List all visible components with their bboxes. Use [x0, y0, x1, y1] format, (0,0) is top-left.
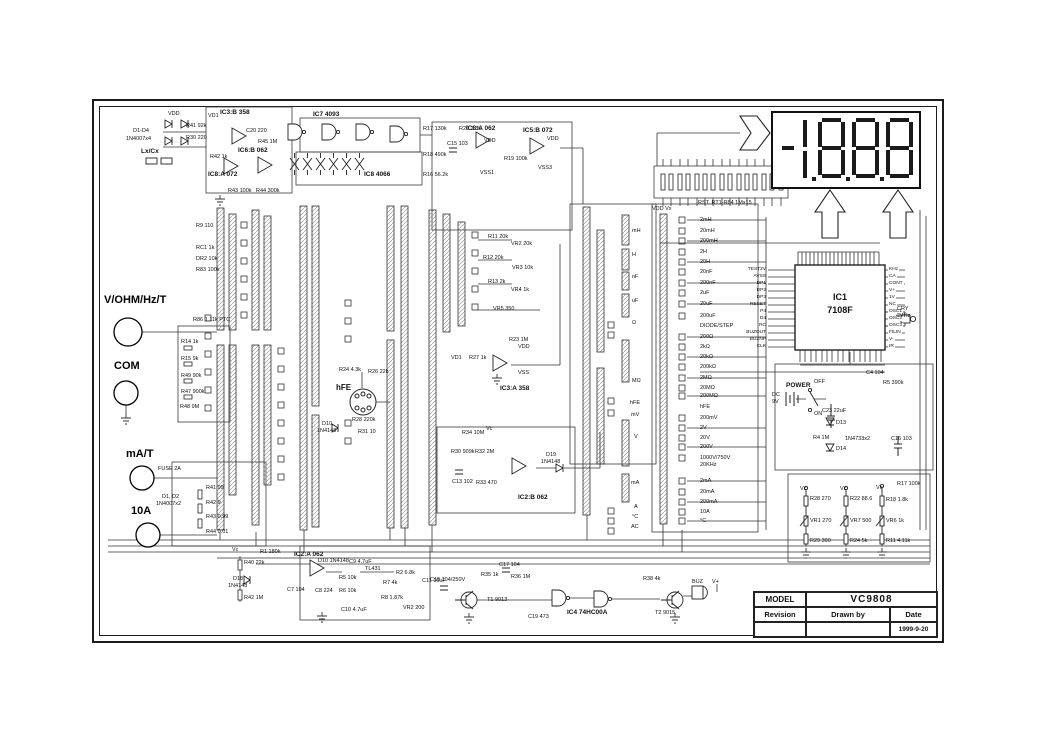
mode-label: MΩ	[632, 378, 641, 384]
label-r17b: R17 100k	[897, 481, 921, 487]
label-r15: R15 9k	[181, 356, 198, 362]
range-label: 200V	[700, 444, 713, 450]
label-r27: R27 1k	[469, 355, 486, 361]
range-label: 200kΩ	[700, 364, 716, 370]
terminal-label-com: COM	[114, 361, 140, 372]
label-r5: R5 10k	[339, 575, 356, 581]
title-block-date-label: Date	[890, 607, 937, 622]
title-block-drawnby-label: Drawn by	[806, 607, 890, 622]
range-label: 20mH	[700, 228, 715, 234]
label-r47: R47 900k	[181, 389, 205, 395]
label-c20: C20 220	[246, 128, 267, 134]
label-vdd: VDD	[518, 344, 530, 350]
ic1-pin-label: RC	[728, 323, 766, 328]
label-r45: R45 1M	[258, 139, 277, 145]
label-vc: Vc	[232, 547, 238, 553]
label-r31: R31 10	[358, 429, 376, 435]
arrow-into-display-icon	[740, 116, 770, 150]
label-r42: R42 1k	[210, 154, 227, 160]
label-buz: BUZ	[692, 579, 703, 585]
arrow-up-right-icon	[883, 190, 913, 238]
label-r86: R86 1.11k PTC	[193, 317, 230, 323]
opamp-ic3b-icon	[232, 128, 246, 144]
label-d1-4-part: 1N4007x4	[126, 136, 151, 142]
label-dc: DC	[772, 392, 780, 398]
label-r16: R16 56.2k	[423, 172, 448, 178]
range-label: 20uF	[700, 301, 713, 307]
range-label: 2kΩ	[700, 344, 710, 350]
label-d18-part: 1N4148	[228, 583, 247, 589]
label-ic7: IC7 4093	[313, 111, 339, 118]
label-ic4: IC4 74HC00A	[567, 609, 607, 616]
ic1-pin-label: BUZNP	[728, 337, 766, 342]
label-d14: D14	[836, 446, 846, 452]
range-label: 200mV	[700, 415, 717, 421]
range-label: 20MΩ	[700, 385, 715, 391]
label-r7: R7 4k	[383, 580, 397, 586]
label-r43-shunt: R43 0.99	[206, 514, 228, 520]
ic1-pin-label: CONT	[888, 281, 904, 286]
label-vc: Vc	[486, 426, 492, 432]
label-r35: R35 1k	[481, 572, 498, 578]
ic1-pin-label: 1V	[888, 295, 896, 300]
ic1-pin-label: OSC3	[888, 323, 903, 328]
label-c9: C9 4.7uF	[349, 559, 372, 565]
range-label: °C	[700, 518, 706, 524]
label-fuse: FUSE 2A	[158, 466, 181, 472]
label-crystal: CRY	[897, 306, 909, 312]
range-label: 200mA	[700, 499, 717, 505]
trimmer-chains	[800, 484, 884, 546]
label-r4: R4 1M	[813, 435, 829, 441]
label-d1-4: D1-D4	[133, 128, 149, 134]
label-vc: Vc	[800, 486, 806, 492]
terminal-ma	[130, 466, 154, 490]
label-dr2: DR2 10k	[196, 256, 217, 262]
label-r42-shunt: R42 9	[206, 500, 221, 506]
label-r44-shunt: R44 0.01	[206, 529, 228, 535]
lxcx-parts	[146, 158, 172, 164]
label-ic6b: IC6:B 062	[238, 147, 268, 154]
buzzer-icon	[692, 586, 707, 599]
nand-gate-icons	[288, 124, 612, 607]
zener-d14-icon	[826, 444, 834, 451]
title-block-date-value: 1999-9-20	[890, 622, 937, 637]
label-r44: R44 300k	[256, 188, 280, 194]
label-r1: R1 180k	[260, 549, 281, 555]
label-r23: R23 1M	[509, 337, 528, 343]
label-r42b: R42 1M	[244, 595, 263, 601]
range-label: 20mA	[700, 489, 714, 495]
label-t2: T2 9015	[655, 610, 675, 616]
label-power: POWER	[786, 382, 811, 389]
label-d10: D10	[322, 421, 332, 427]
label-r43: R43 100k	[228, 188, 252, 194]
label-r38: R38 4k	[643, 576, 660, 582]
label-vss1: VSS1	[480, 170, 494, 176]
label-vr2b: VR2 200	[403, 605, 424, 611]
label-r48: R48 9M	[180, 404, 199, 410]
label-vd1: VD1	[451, 355, 462, 361]
analog-switch-icons	[290, 153, 364, 175]
ic1-pin-label: V-	[888, 337, 895, 342]
label-r36: R36 1M	[511, 574, 530, 580]
label-d1d2-part: 1N4007x2	[156, 501, 181, 507]
label-r41: R41 92k	[186, 123, 207, 129]
label-r26: R26 22k	[368, 369, 389, 375]
label-rc1: RC1 1k	[196, 245, 214, 251]
opamp-icons	[224, 128, 544, 576]
label-c16: C16 103	[891, 436, 912, 442]
label-9v: 9V	[772, 399, 779, 405]
title-block-revision-label: Revision	[754, 607, 806, 622]
terminal-label-vohm: V/OHM/Hz/T	[104, 295, 166, 306]
label-c10: C10 4.7uF	[341, 607, 367, 613]
ic1-pin-label: CLK	[728, 344, 766, 349]
label-vr2: VR2 20k	[511, 241, 532, 247]
arrow-up-left-icon	[815, 190, 845, 238]
ic1-pin-label: CA	[888, 274, 897, 279]
label-r22: R22 88.6	[850, 496, 872, 502]
label-r18b: R18 1.8k	[886, 497, 908, 503]
label-r19: R19 100k	[504, 156, 528, 162]
label-c13: C13 102	[452, 479, 473, 485]
title-block-revision-value	[754, 622, 806, 637]
label-r5b: R5 390k	[883, 380, 904, 386]
lcd-display	[772, 112, 920, 188]
label-r18: R18 490k	[423, 152, 447, 158]
label-r34: R34 10M	[462, 430, 484, 436]
label-t1: T1 9013	[487, 597, 507, 603]
label-d19-part: 1N4148	[541, 459, 560, 465]
label-array-power: VDD Vx	[652, 206, 672, 212]
label-off: OFF	[814, 379, 825, 385]
ic1-pin-label: AVSS	[728, 274, 766, 279]
range-label: 200uF	[700, 313, 716, 319]
label-r8: R8 1.87k	[381, 595, 403, 601]
label-vr1: VR1 270	[810, 518, 831, 524]
label-tl431: TL431	[365, 566, 381, 572]
ic1-pin-label: DP3	[728, 295, 766, 300]
label-r40: R40 22k	[244, 560, 265, 566]
label-d19: D19	[546, 452, 556, 458]
label-r83: R83 100k	[196, 267, 220, 273]
terminal-com	[114, 381, 138, 405]
range-label: 2H	[700, 249, 707, 255]
label-r14: R14 1k	[181, 339, 198, 345]
label-ic3b: IC3:B 358	[220, 109, 250, 116]
range-label: DIODE/STEP	[700, 323, 733, 329]
range-label: 20KHz	[700, 462, 717, 468]
label-r13: R13 2k	[488, 279, 505, 285]
label-r33: R33 470	[476, 480, 497, 486]
opamp-ic2b-icon	[512, 458, 526, 474]
label-crystal-freq: 4MHz	[896, 313, 910, 319]
label-ic2b: IC2:B 062	[518, 494, 548, 501]
label-on: ON	[814, 411, 822, 417]
range-label: 2mH	[700, 217, 712, 223]
range-label: 20V	[700, 435, 710, 441]
label-r49: R49 90k	[181, 373, 202, 379]
range-label: 200mH	[700, 238, 718, 244]
schematic-sheet: V/OHM/Hz/T COM mA/T 10A IC1 7108F TEST2V…	[0, 0, 1053, 744]
range-label: 10A	[700, 509, 710, 515]
label-vdd: VDD	[168, 111, 180, 117]
ic1-pin-label: V+	[888, 288, 896, 293]
label-r28: R28 220k	[352, 417, 376, 423]
label-c4: C4 104	[866, 370, 884, 376]
label-d1d2: D1, D2	[162, 494, 179, 500]
power-switch-icon	[808, 388, 818, 411]
terminal-label-10a: 10A	[131, 506, 151, 517]
label-c23: C23 22uF	[822, 408, 846, 414]
label-zener: 1N4733x2	[845, 436, 870, 442]
label-r28c: R28 270	[810, 496, 831, 502]
label-hfe: hFE	[336, 384, 351, 393]
ic1-part: 7108F	[795, 305, 885, 316]
range-label: hFE	[700, 404, 710, 410]
label-vdd: VDD	[484, 138, 496, 144]
title-block: MODEL VC9808 Revision Drawn by Date 1999…	[753, 591, 938, 638]
label-vd1: VD1	[208, 113, 219, 119]
label-vc: Vc	[840, 486, 846, 492]
range-label: 2mA	[700, 478, 711, 484]
title-block-model-label: MODEL	[754, 592, 806, 607]
label-r17: R17 130k	[423, 126, 447, 132]
label-vr6: VR6 1k	[886, 518, 904, 524]
label-r32: R32 2M	[475, 449, 494, 455]
resistor-array	[661, 174, 783, 190]
title-block-model-value: VC9808	[806, 592, 937, 607]
label-r2: R2 6.8k	[396, 570, 415, 576]
hfe-socket-icon	[350, 389, 376, 415]
terminal-label-ma: mA/T	[126, 449, 154, 460]
ic1-pin-label: NC	[888, 302, 897, 307]
label-c7: C7 104	[287, 587, 305, 593]
mode-label: Ω	[632, 320, 636, 326]
ic1-pin-label: RESET	[728, 302, 766, 307]
label-c15: C15 103	[447, 141, 468, 147]
label-vplus: V+	[712, 579, 719, 585]
label-vr5: VR5 350	[493, 306, 514, 312]
mode-label: AC	[631, 524, 639, 530]
transistor-t1-icon	[455, 591, 477, 609]
range-label: 200Ω	[700, 334, 713, 340]
label-r9: R9 110	[196, 223, 213, 229]
label-r29: R29 390	[810, 538, 831, 544]
range-label: 20kΩ	[700, 354, 713, 360]
ic1-pin-label: TEST2V	[728, 267, 766, 272]
ic1-pin-label: FILIN	[888, 330, 902, 335]
label-r11b: R11 4.11k	[886, 538, 910, 544]
ic1-pin-label: KHz	[888, 267, 899, 272]
ic1-name: IC1	[795, 292, 885, 303]
opamp-ic5b072-icon	[530, 138, 544, 154]
ic1-pin-label: IR	[888, 344, 895, 349]
label-c8: C8 224	[315, 588, 333, 594]
label-vr7: VR7 500	[850, 518, 871, 524]
mode-label: nF	[632, 274, 638, 280]
label-vdd: VDD	[547, 136, 559, 142]
mode-label: uF	[632, 298, 638, 304]
opamp-ic3a-icon	[493, 355, 507, 371]
range-label: 1000V/750V	[700, 455, 730, 461]
mode-label: mA	[631, 480, 639, 486]
label-vss3: VSS3	[538, 165, 552, 171]
mode-label: A	[634, 504, 638, 510]
range-label: 2V	[700, 425, 707, 431]
label-r24b: R24 5k	[850, 538, 867, 544]
terminal-vohm	[114, 318, 142, 346]
mode-label: V	[634, 434, 638, 440]
label-c18: C18 104/250V	[430, 577, 465, 583]
label-r12: R12 20k	[483, 255, 504, 261]
mode-label: H	[632, 252, 636, 258]
label-vc: Vc	[876, 485, 882, 491]
label-ic8a062: IC8:A 062	[466, 125, 495, 132]
zener-d13-icon	[826, 418, 834, 425]
mode-label: hFE	[630, 400, 640, 406]
ic1-pin-label: DP1	[728, 281, 766, 286]
label-r6: R6 10k	[339, 588, 356, 594]
label-d18: D18	[233, 576, 243, 582]
label-lxcx: Lx/Cx	[141, 148, 159, 155]
diode-d19-icon	[556, 464, 563, 472]
label-c19: C19 473	[528, 614, 549, 620]
range-label: 2uF	[700, 290, 709, 296]
mode-label: mH	[632, 228, 641, 234]
label-vr3: VR3 10k	[512, 265, 533, 271]
label-r24: R24 4.3k	[339, 367, 361, 373]
label-d10-part: 1N4148	[317, 428, 336, 434]
label-r11: R11 20k	[488, 234, 508, 240]
label-c17: C17 104	[499, 562, 520, 568]
label-d10c: D10 1N4148	[318, 558, 349, 564]
ic1-pin-label: BUZOUT	[728, 330, 766, 335]
ic1-pin-label: P4	[728, 309, 766, 314]
label-ic84066: IC8 4066	[364, 171, 390, 178]
title-block-drawnby-value	[806, 622, 890, 637]
ic1-pin-label: DP2	[728, 288, 766, 293]
ic1-pin-label: D4	[728, 316, 766, 321]
opamp-ic6b-icon	[258, 157, 272, 173]
mode-label: °C	[632, 514, 638, 520]
range-label: 2MΩ	[700, 375, 712, 381]
label-vr4: VR4 1k	[511, 287, 529, 293]
label-resistor-array: RST. RT1-R84 1Mx15	[698, 200, 752, 206]
label-ic8a072: IC8:A 072	[208, 171, 237, 178]
label-d13: D13	[836, 420, 846, 426]
label-vss: VSS	[518, 370, 529, 376]
rotary-switch-wafers	[217, 206, 667, 530]
range-label: 200MΩ	[700, 393, 718, 399]
range-label: 200nF	[700, 280, 716, 286]
label-ic3a: IC3:A 358	[500, 385, 529, 392]
label-r30: R30 220	[186, 135, 207, 141]
mode-label: mV	[631, 412, 639, 418]
label-r41-shunt: R41 99	[206, 485, 224, 491]
range-label: 20nF	[700, 269, 713, 275]
terminal-10a	[136, 523, 160, 547]
label-r30b: R30 909k	[451, 449, 475, 455]
label-ic5b: IC5:B 072	[523, 127, 553, 134]
transistor-t2-icon	[661, 591, 683, 609]
range-label: 20H	[700, 259, 710, 265]
